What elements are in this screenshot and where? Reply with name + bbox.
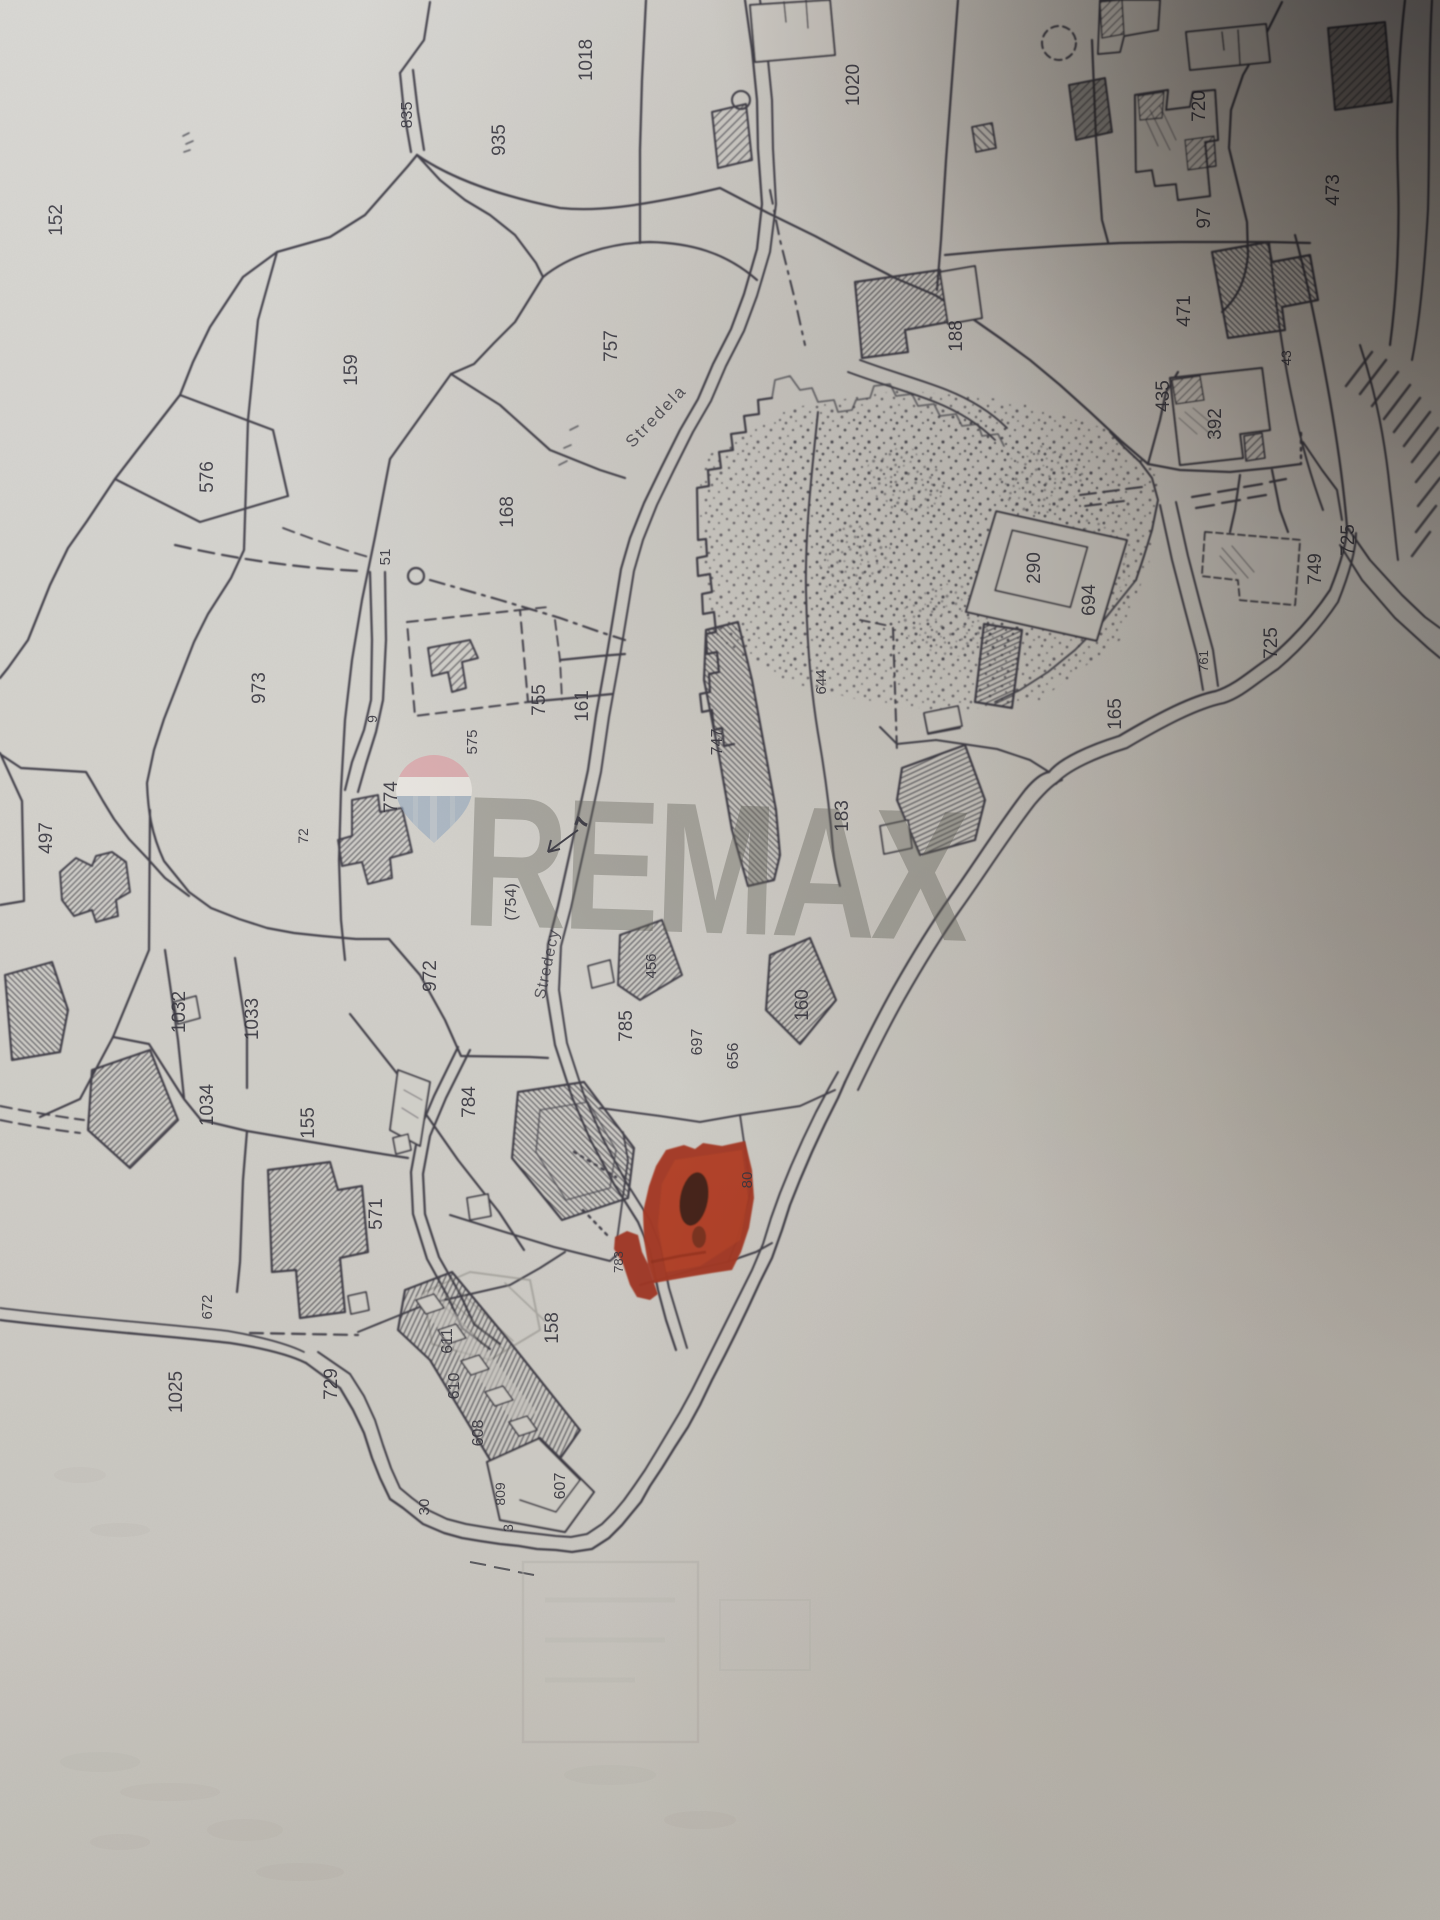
svg-text:1020: 1020 (843, 64, 864, 106)
svg-text:REMAX: REMAX (460, 758, 972, 981)
svg-text:747: 747 (709, 729, 726, 756)
svg-text:72: 72 (295, 828, 311, 844)
svg-text:1033: 1033 (242, 998, 263, 1040)
svg-text:473: 473 (1323, 174, 1344, 206)
svg-text:935: 935 (489, 124, 510, 156)
svg-text:43: 43 (1278, 350, 1294, 366)
svg-text:456: 456 (643, 953, 660, 978)
svg-text:610: 610 (446, 1373, 463, 1400)
svg-text:725: 725 (1338, 524, 1359, 556)
svg-text:(754): (754) (503, 883, 520, 920)
svg-text:30: 30 (416, 1499, 433, 1516)
svg-text:761: 761 (1196, 650, 1211, 672)
svg-text:165: 165 (1105, 698, 1126, 730)
svg-text:290: 290 (1024, 552, 1045, 584)
svg-text:158: 158 (542, 1312, 563, 1344)
svg-text:757: 757 (601, 330, 622, 362)
svg-text:575: 575 (464, 729, 481, 754)
svg-text:51: 51 (377, 549, 394, 566)
svg-text:9: 9 (364, 715, 380, 723)
svg-text:608: 608 (470, 1420, 487, 1447)
svg-text:697: 697 (689, 1029, 706, 1056)
svg-text:972: 972 (420, 960, 441, 992)
svg-text:161: 161 (572, 690, 593, 722)
svg-text:97: 97 (1194, 207, 1215, 228)
svg-text:755: 755 (529, 684, 550, 716)
svg-text:672: 672 (199, 1294, 216, 1319)
svg-text:152: 152 (46, 204, 67, 236)
svg-text:644: 644 (813, 669, 830, 694)
svg-text:835: 835 (399, 102, 416, 129)
svg-text:576: 576 (197, 461, 218, 493)
svg-text:183: 183 (832, 800, 853, 832)
svg-text:159: 159 (341, 354, 362, 386)
svg-text:656: 656 (725, 1043, 742, 1070)
svg-text:571: 571 (366, 1198, 387, 1230)
svg-text:783: 783 (611, 1251, 626, 1273)
svg-text:611: 611 (439, 1328, 456, 1354)
svg-text:749: 749 (1305, 553, 1326, 585)
svg-text:785: 785 (616, 1010, 637, 1042)
svg-text:1018: 1018 (576, 39, 597, 81)
svg-text:1034: 1034 (197, 1083, 218, 1126)
svg-text:720: 720 (1189, 90, 1210, 122)
svg-text:973: 973 (249, 672, 270, 704)
svg-text:809: 809 (492, 1482, 508, 1506)
svg-text:694: 694 (1079, 584, 1100, 616)
svg-text:1032: 1032 (169, 991, 190, 1033)
svg-text:435: 435 (1153, 380, 1174, 412)
svg-text:729: 729 (321, 1368, 342, 1400)
svg-text:392: 392 (1205, 408, 1226, 440)
svg-text:3: 3 (500, 1524, 516, 1532)
svg-text:471: 471 (1174, 295, 1195, 327)
svg-text:160: 160 (792, 989, 813, 1021)
svg-text:80: 80 (739, 1172, 756, 1189)
svg-text:725: 725 (1261, 627, 1282, 659)
svg-text:784: 784 (459, 1086, 480, 1118)
svg-text:155: 155 (298, 1107, 319, 1139)
svg-text:607: 607 (552, 1473, 569, 1500)
svg-text:1025: 1025 (166, 1371, 187, 1413)
svg-text:497: 497 (36, 822, 57, 854)
svg-text:168: 168 (497, 496, 518, 528)
svg-text:774: 774 (381, 781, 402, 813)
svg-text:188: 188 (946, 320, 967, 352)
